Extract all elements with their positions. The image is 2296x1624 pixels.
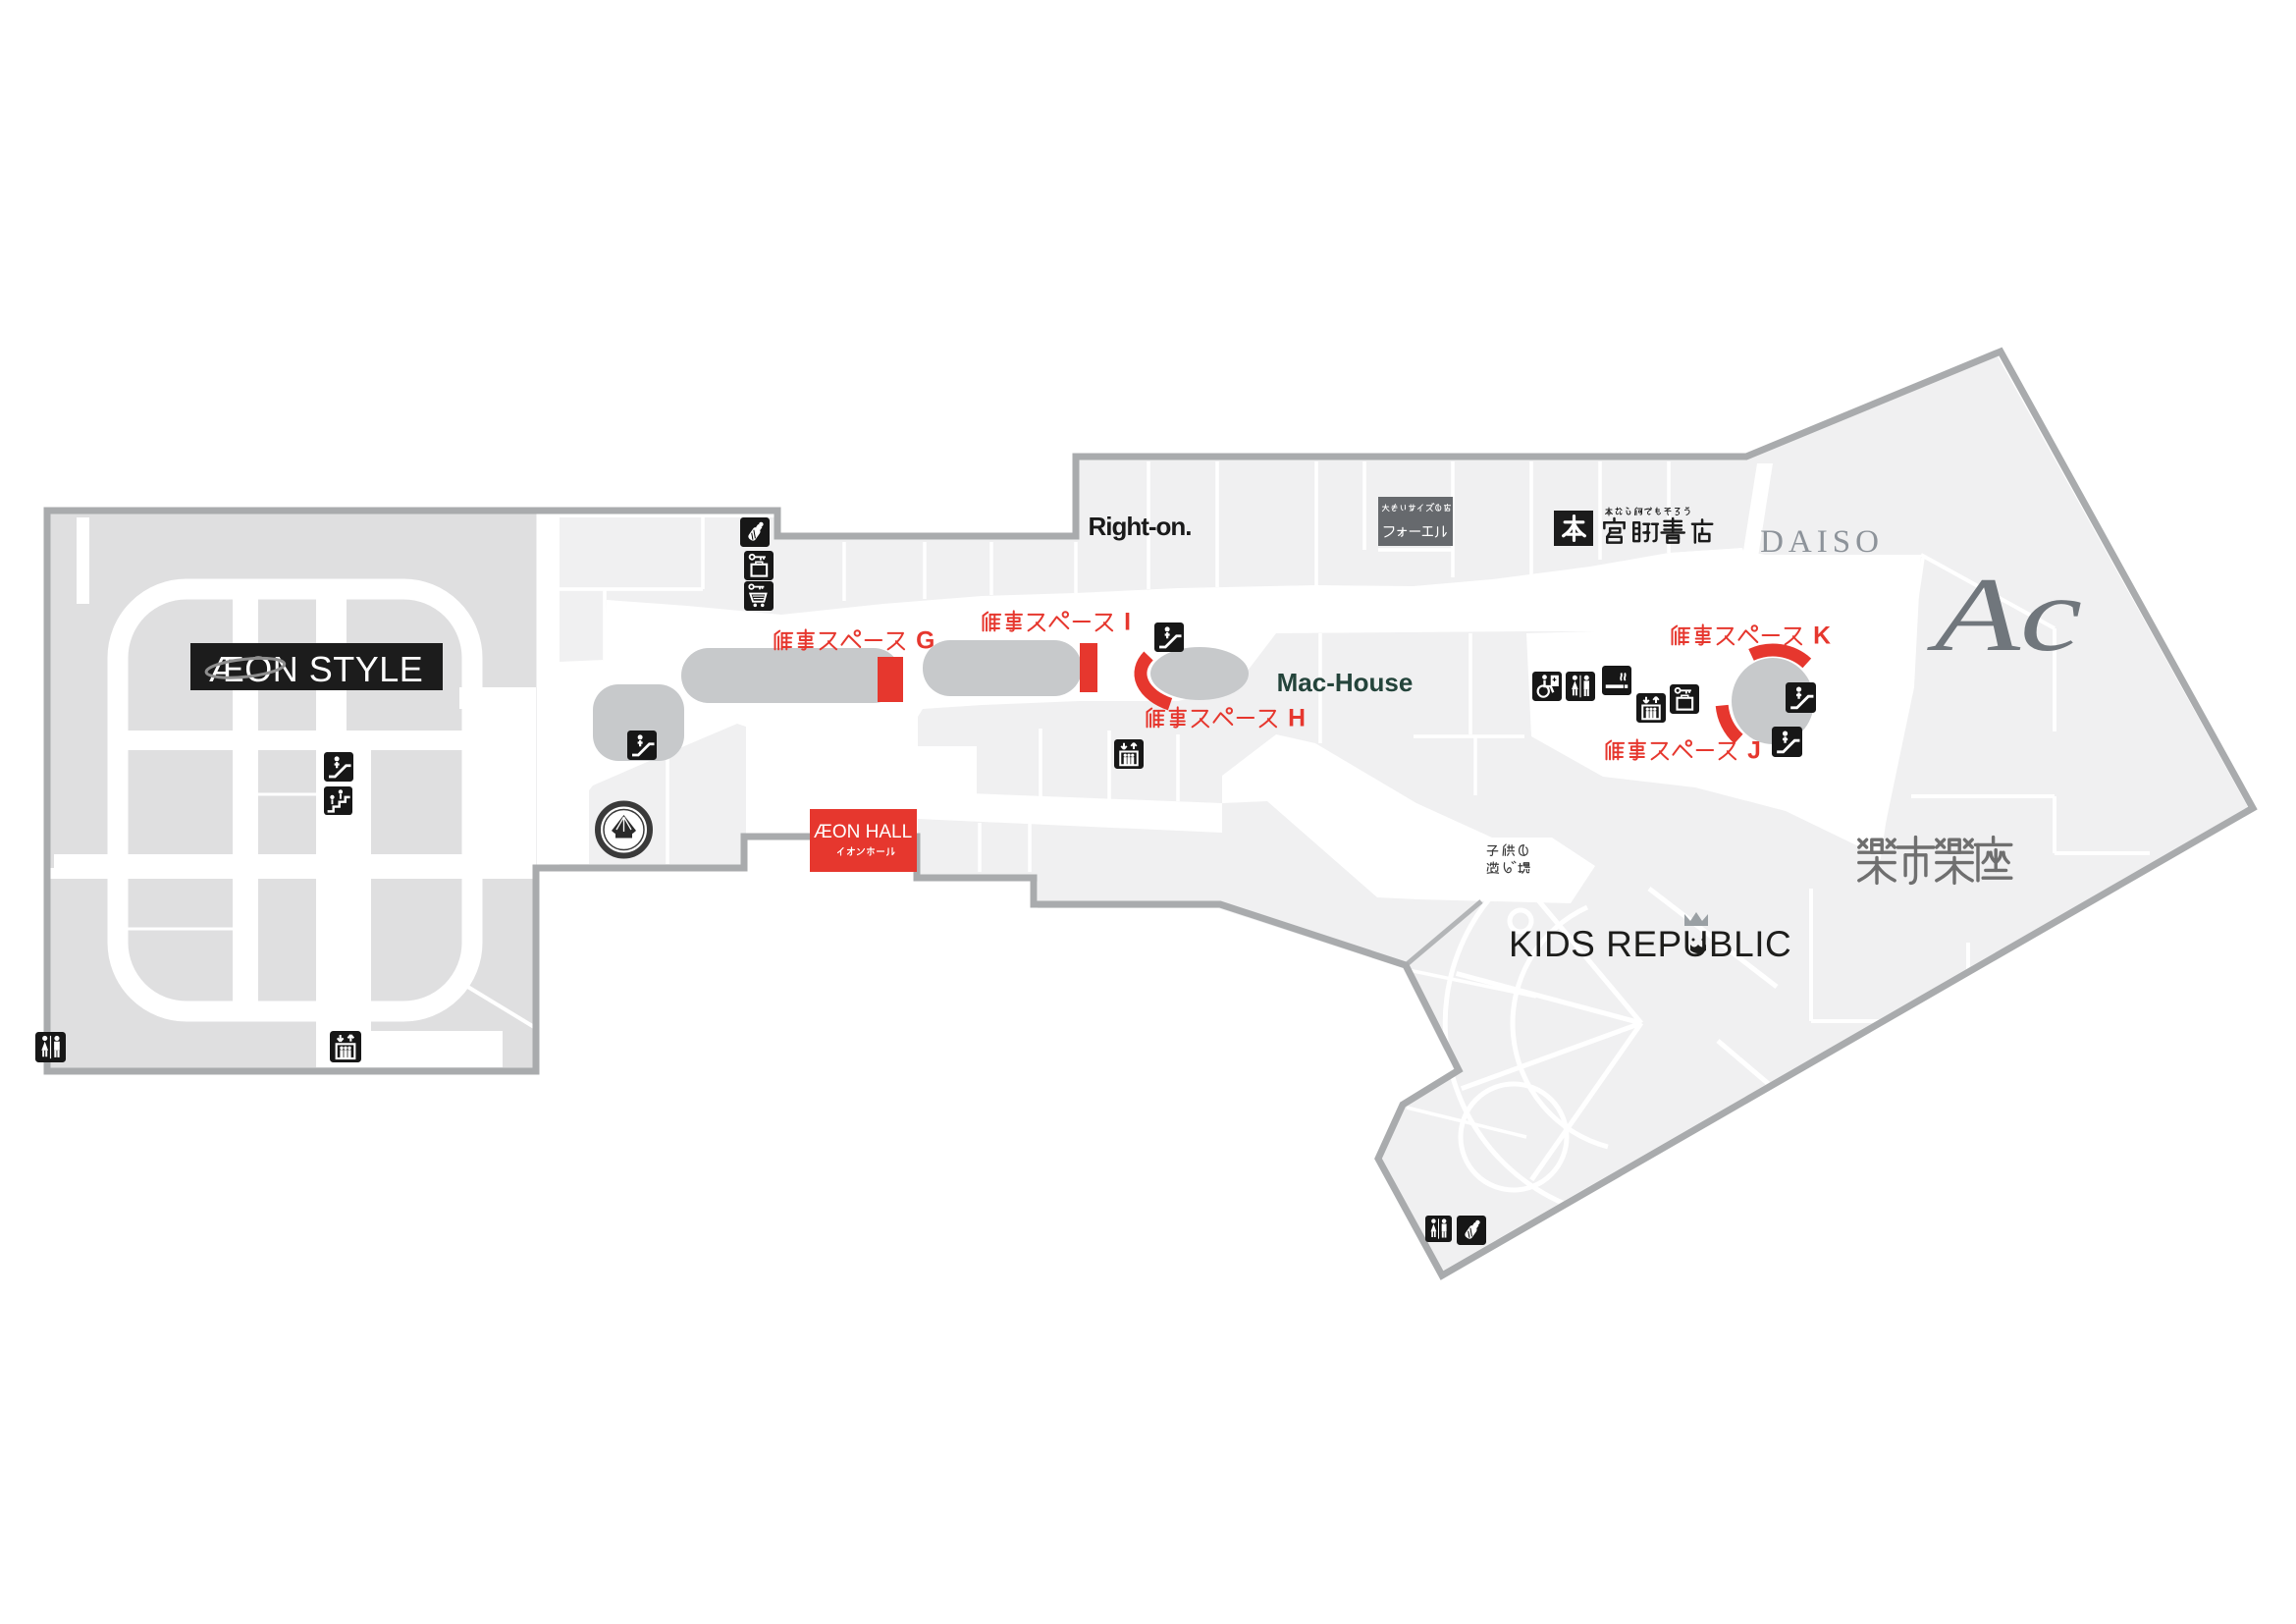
svg-text:KIDS REPUBLIC: KIDS REPUBLIC (1509, 924, 1791, 964)
svg-text:ÆON STYLE: ÆON STYLE (209, 649, 424, 689)
svg-text:Ac: Ac (1927, 556, 2082, 674)
svg-text:I: I (1124, 610, 1131, 636)
svg-text:G: G (916, 628, 934, 655)
svg-text:J: J (1747, 738, 1761, 765)
svg-text:Right-on.: Right-on. (1088, 512, 1191, 541)
svg-text:ÆON HALL: ÆON HALL (814, 822, 912, 842)
svg-text:H: H (1288, 706, 1306, 732)
svg-text:Mac-House: Mac-House (1277, 668, 1414, 697)
svg-text:K: K (1813, 623, 1831, 650)
svg-text:DAISO: DAISO (1760, 524, 1884, 560)
